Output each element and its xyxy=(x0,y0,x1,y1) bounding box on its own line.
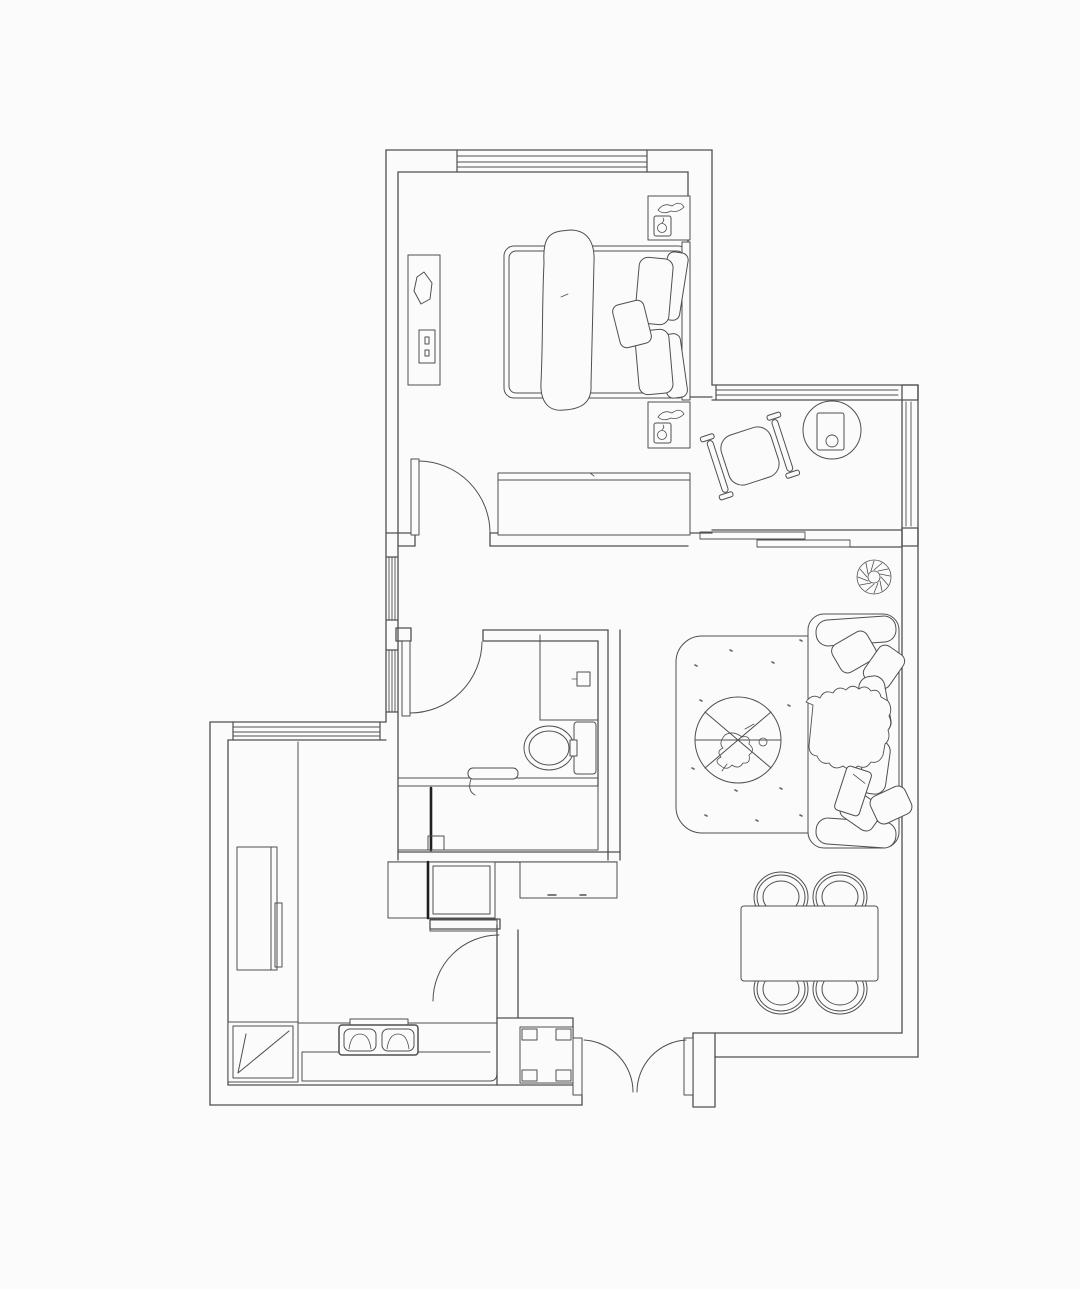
round-coffee-table xyxy=(695,697,781,783)
nightstand-upper xyxy=(648,196,690,240)
nightstand-lower xyxy=(648,402,690,448)
toilet xyxy=(524,722,596,774)
throw-blanket xyxy=(541,230,594,410)
double-bed xyxy=(504,230,690,410)
dining-table xyxy=(741,906,878,981)
structural-column xyxy=(520,1027,573,1083)
console-cabinet xyxy=(520,862,617,898)
two-burner-stove xyxy=(339,1019,418,1055)
dresser xyxy=(408,255,440,385)
sofa xyxy=(806,614,915,849)
tall-cabinet xyxy=(237,847,282,970)
faucet-icon xyxy=(468,768,518,779)
sofa-blanket xyxy=(806,686,891,769)
round-side-table xyxy=(803,401,861,459)
corner-sink xyxy=(228,1022,298,1082)
floor-plan-canvas xyxy=(0,0,1080,1289)
floor-plan-svg xyxy=(0,0,1080,1289)
wardrobe xyxy=(498,473,690,535)
